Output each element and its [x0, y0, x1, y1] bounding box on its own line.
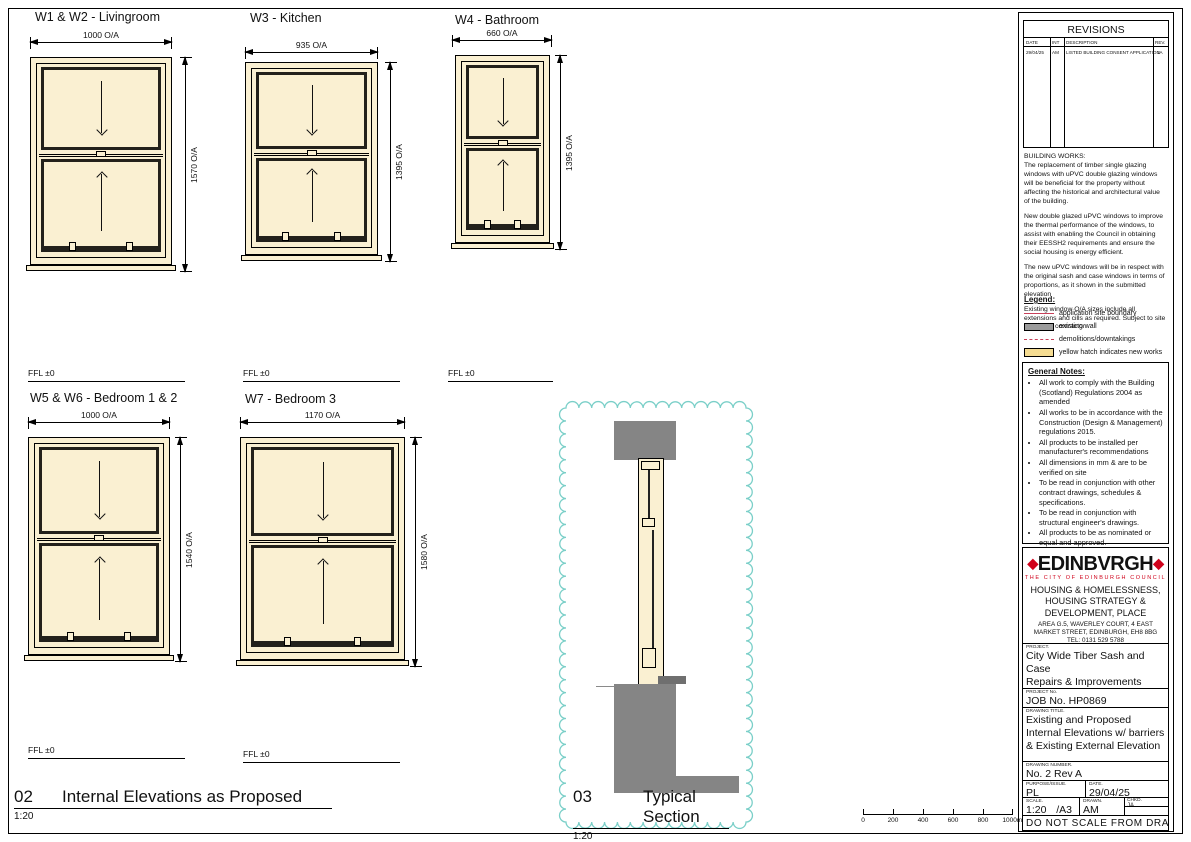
height-dimension: 1570 O/A [185, 57, 186, 272]
section-bottom-rail [642, 648, 656, 668]
slide-up-arrow-icon [323, 561, 324, 624]
project-cell: PROJECT. City Wide Tiber Sash and Case R… [1022, 643, 1169, 689]
width-dimension-text: 1000 O/A [28, 410, 170, 420]
sash-lift-handle-icon [514, 220, 521, 229]
ffl-label: FFL ±0 [448, 368, 475, 378]
section-upper-glazing [648, 470, 650, 518]
drawing-label-heading: 02 Internal Elevations as Proposed [14, 787, 332, 809]
window-drawing [30, 57, 172, 265]
general-note: All dimensions in mm & are to be verifie… [1039, 458, 1163, 477]
height-dimension-text: 1395 O/A [394, 144, 404, 180]
purpose-issue-cell: PURPOSE/ISSUE. PL [1022, 780, 1086, 798]
dim-tick-icon [28, 417, 29, 429]
general-note: All works to be in accordance with the C… [1039, 408, 1163, 437]
window-cill [241, 255, 382, 261]
slide-down-arrow-icon [503, 78, 504, 125]
window-drawing [245, 62, 378, 255]
width-dimension-text: 660 O/A [452, 28, 552, 38]
ffl-datum: FFL ±0 [28, 368, 185, 382]
revisions-grid: DATE INT DESCRIPTION REV. 29/04/25 AM LI… [1024, 38, 1168, 147]
edinburgh-council-logo: ◆EDINBVRGH◆ [1023, 554, 1168, 574]
window-frame [246, 443, 399, 653]
drawing-number-03: 03 [573, 787, 643, 827]
dim-tick-icon [555, 55, 567, 56]
scale-tick [863, 809, 864, 815]
drawing-label-typical-section: 03 Typical Section 1:20 [573, 787, 729, 842]
dim-tick-icon [385, 261, 397, 262]
col-header-rev: REV. [1155, 40, 1165, 45]
scale-tick-label: 200 [888, 817, 899, 824]
section-sash-head [641, 461, 660, 470]
legend-item: existing wall [1024, 320, 1167, 333]
sash-lock-icon [94, 535, 104, 541]
window-drawing [455, 55, 550, 243]
project-name: City Wide Tiber Sash and Case Repairs & … [1026, 650, 1165, 689]
drawing-scale: 1:20 [14, 811, 332, 822]
width-dimension-text: 1170 O/A [240, 410, 405, 420]
slide-up-arrow-icon [312, 171, 313, 222]
legend-label: demolitions/downtakings [1059, 336, 1135, 343]
window-frame [36, 63, 166, 258]
window-title: W1 & W2 - Livingroom [35, 10, 160, 24]
legend-label: existing wall [1059, 323, 1097, 330]
window-cill [236, 660, 409, 666]
window-drawing [240, 437, 405, 660]
site-boundary-line-icon [1024, 313, 1054, 314]
drawing-title-line: & Existing External Elevation [1026, 740, 1165, 753]
dim-tick-icon [180, 57, 192, 58]
dim-tick-icon [404, 417, 405, 429]
scale-tick [953, 809, 954, 815]
legend-label: application site boundary [1059, 310, 1136, 317]
revision-description: LISTED BUILDING CONSENT APPLICATION [1066, 50, 1160, 55]
existing-wall-swatch-icon [1024, 323, 1054, 331]
department-line: HOUSING & HOMELESSNESS, [1023, 585, 1168, 596]
sash-lift-handle-icon [126, 242, 133, 251]
bottom-sash [466, 148, 539, 230]
logo-diamond-icon: ◆ [1153, 555, 1163, 571]
dim-tick-icon [377, 47, 378, 59]
legend-item: application site boundary [1024, 307, 1167, 320]
window-title: W4 - Bathroom [455, 13, 539, 27]
section-wall-below-window [614, 684, 676, 793]
revisions-table: REVISIONS DATE INT DESCRIPTION REV. 29/0… [1023, 20, 1169, 148]
new-works-hatch-swatch-icon [1024, 348, 1054, 357]
general-notes-box: General Notes: All work to comply with t… [1022, 362, 1169, 544]
dim-tick-icon [385, 62, 397, 63]
sash-lift-handle-icon [69, 242, 76, 251]
sash-lock-icon [96, 151, 106, 157]
revision-rev: 1A [1157, 50, 1163, 55]
revisions-title: REVISIONS [1024, 21, 1168, 38]
legend-item: yellow hatch indicates new works [1024, 346, 1167, 359]
ffl-datum: FFL ±0 [28, 745, 185, 759]
building-works-paragraph: The replacement of timber single glazing… [1024, 162, 1167, 207]
scale-tick [1012, 809, 1013, 815]
window-drawing [28, 437, 170, 655]
council-address: AREA G.5, WAVERLEY COURT, 4 EAST MARKET … [1023, 621, 1168, 646]
width-dimension: 660 O/A [452, 40, 552, 41]
width-dimension: 1000 O/A [30, 42, 172, 43]
drawing-title-line: Existing and Proposed [1026, 714, 1165, 727]
slide-down-arrow-icon [101, 81, 102, 133]
legend-item: demolitions/downtakings [1024, 333, 1167, 346]
drawing-title-cell: DRAWING TITLE. Existing and Proposed Int… [1022, 707, 1169, 762]
height-dimension-text: 1540 O/A [184, 532, 194, 568]
demolition-dashed-line-icon [1024, 339, 1054, 340]
height-dimension-text: 1570 O/A [189, 147, 199, 183]
sash-lift-handle-icon [282, 232, 289, 241]
bottom-sash [251, 545, 394, 647]
ffl-datum: FFL ±0 [448, 368, 553, 382]
ffl-datum: FFL ±0 [243, 749, 400, 763]
slide-down-arrow-icon [323, 462, 324, 519]
window-frame [34, 443, 164, 648]
sash-lift-handle-icon [354, 637, 361, 646]
drawing-title-text: Internal Elevations as Proposed [62, 787, 302, 807]
height-dimension: 1540 O/A [180, 437, 181, 662]
slide-up-arrow-icon [101, 174, 102, 231]
drawing-label-internal-elevations: 02 Internal Elevations as Proposed 1:20 [14, 787, 332, 822]
scale-tick-label: 600 [948, 817, 959, 824]
general-note: All work to comply with the Building (Sc… [1039, 378, 1163, 407]
department-name: HOUSING & HOMELESSNESS, HOUSING STRATEGY… [1023, 585, 1168, 619]
top-sash [251, 447, 394, 536]
general-note: To be read in conjunction with other con… [1039, 478, 1163, 507]
col-header-date: DATE [1026, 40, 1038, 45]
slide-down-arrow-icon [312, 85, 313, 133]
window-title: W5 & W6 - Bedroom 1 & 2 [30, 391, 177, 405]
drawing-label-heading: 03 Typical Section [573, 787, 729, 829]
section-cill-cap [658, 676, 686, 684]
top-sash [256, 72, 367, 149]
slide-up-arrow-icon [99, 559, 100, 620]
dim-tick-icon [555, 249, 567, 250]
general-notes-title: General Notes: [1028, 367, 1163, 376]
height-dimension-text: 1580 O/A [419, 534, 429, 570]
window-frame [461, 61, 544, 236]
department-line: DEVELOPMENT, PLACE [1023, 608, 1168, 619]
ffl-label: FFL ±0 [28, 368, 55, 378]
ffl-datum: FFL ±0 [243, 368, 400, 382]
dim-tick-icon [171, 37, 172, 49]
section-meeting-rail [642, 518, 655, 527]
dim-tick-icon [452, 35, 453, 47]
dim-tick-icon [175, 661, 187, 662]
col-header-description: DESCRIPTION [1066, 40, 1097, 45]
general-note: All products to be installed per manufac… [1039, 438, 1163, 457]
revision-entry-row: 29/04/25 AM LISTED BUILDING CONSENT APPL… [1024, 47, 1168, 59]
slide-down-arrow-icon [99, 461, 100, 516]
scale-tick-label: 800 [978, 817, 989, 824]
building-works-paragraph: New double glazed uPVC windows to improv… [1024, 213, 1167, 258]
revision-date: 29/04/25 [1026, 50, 1044, 55]
scale-tick [923, 809, 924, 815]
section-wall-above-window [614, 421, 676, 460]
scale-tick-label: 0 [861, 817, 865, 824]
height-dimension-text: 1395 O/A [564, 135, 574, 171]
drawing-title-text: Typical Section [643, 787, 729, 827]
council-identity-box: ◆EDINBVRGH◆ THE CITY OF EDINBURGH COUNCI… [1022, 547, 1169, 644]
slide-up-arrow-icon [503, 162, 504, 211]
drawn-cell: DRAWN. AM [1079, 797, 1125, 816]
bottom-sash [256, 158, 367, 242]
legend-label: yellow hatch indicates new works [1059, 349, 1162, 356]
dim-tick-icon [180, 271, 192, 272]
window-title: W7 - Bedroom 3 [245, 392, 336, 406]
top-sash [41, 67, 161, 150]
window-cill [24, 655, 174, 661]
dim-tick-icon [410, 666, 422, 667]
general-notes-list: All work to comply with the Building (Sc… [1028, 378, 1163, 548]
scale-bar-line [863, 814, 1013, 815]
sash-lock-icon [307, 150, 317, 156]
scale-tick-label: 400 [918, 817, 929, 824]
section-floor-line [596, 686, 614, 687]
dim-tick-icon [240, 417, 241, 429]
logo-wordmark: EDINBVRGH [1038, 553, 1154, 575]
sash-lift-handle-icon [67, 632, 74, 641]
dim-tick-icon [175, 437, 187, 438]
legend: Legend: application site boundary existi… [1024, 295, 1167, 359]
sash-lock-icon [318, 537, 328, 543]
dim-tick-icon [169, 417, 170, 429]
date-cell: DATE. 29/04/25 [1085, 780, 1169, 798]
width-dimension: 1000 O/A [28, 422, 170, 423]
window-title: W3 - Kitchen [250, 11, 322, 25]
dim-tick-icon [410, 437, 422, 438]
revisions-header-row: DATE INT DESCRIPTION REV. [1024, 38, 1168, 47]
window-cill [26, 265, 176, 271]
width-dimension: 1170 O/A [240, 422, 405, 423]
drawing-title-value: Existing and Proposed Internal Elevation… [1026, 714, 1165, 753]
height-dimension: 1395 O/A [560, 55, 561, 250]
scale-cell: SCALE. 1:20 /A3 [1022, 797, 1080, 816]
general-note: All products to be as nominated or equal… [1039, 528, 1163, 547]
address-line: MARKET STREET, EDINBURGH, EH8 8BG [1023, 629, 1168, 637]
window-frame [251, 68, 372, 248]
ffl-label: FFL ±0 [243, 368, 270, 378]
width-dimension-text: 1000 O/A [30, 30, 172, 40]
col-header-int: INT [1052, 40, 1059, 45]
drawing-number-cell: DRAWING NUMBER. No. 2 Rev A [1022, 761, 1169, 781]
department-line: HOUSING STRATEGY & [1023, 596, 1168, 607]
ffl-label: FFL ±0 [28, 745, 55, 755]
drawing-number-02: 02 [14, 787, 62, 807]
general-note: To be read in conjunction with structura… [1039, 508, 1163, 527]
drawing-scale: 1:20 [573, 831, 729, 842]
sash-lift-handle-icon [124, 632, 131, 641]
width-dimension: 935 O/A [245, 52, 378, 53]
width-dimension-text: 935 O/A [245, 40, 378, 50]
graphic-scale-bar: 0 200 400 600 800 1000mm [863, 805, 1013, 829]
sash-lock-icon [498, 140, 508, 146]
dim-tick-icon [245, 47, 246, 59]
building-works-heading: BUILDING WORKS: [1024, 153, 1167, 162]
scale-tick [893, 809, 894, 815]
dim-tick-icon [551, 35, 552, 47]
revision-int: AM [1052, 50, 1059, 55]
drawing-title-line: Internal Elevations w/ barriers [1026, 727, 1165, 740]
height-dimension: 1580 O/A [415, 437, 416, 667]
window-cill [451, 243, 554, 249]
top-sash [39, 447, 159, 534]
scale-tick [983, 809, 984, 815]
do-not-scale-note: DO NOT SCALE FROM DRAWING [1022, 815, 1169, 831]
bottom-sash [41, 159, 161, 252]
project-number-cell: PROJECT No. JOB No. HP0869 [1022, 688, 1169, 708]
section-lower-glazing [652, 530, 654, 648]
council-tagline: THE CITY OF EDINBURGH COUNCIL [1023, 575, 1168, 581]
address-line: AREA G.5, WAVERLEY COURT, 4 EAST [1023, 621, 1168, 629]
height-dimension: 1395 O/A [390, 62, 391, 262]
sash-lift-handle-icon [334, 232, 341, 241]
dim-tick-icon [30, 37, 31, 49]
sash-lift-handle-icon [484, 220, 491, 229]
top-sash [466, 65, 539, 139]
bottom-sash [39, 543, 159, 642]
logo-diamond-icon: ◆ [1027, 555, 1037, 571]
sash-lift-handle-icon [284, 637, 291, 646]
legend-title: Legend: [1024, 295, 1167, 304]
project-line: City Wide Tiber Sash and Case [1026, 650, 1165, 676]
ffl-label: FFL ±0 [243, 749, 270, 759]
